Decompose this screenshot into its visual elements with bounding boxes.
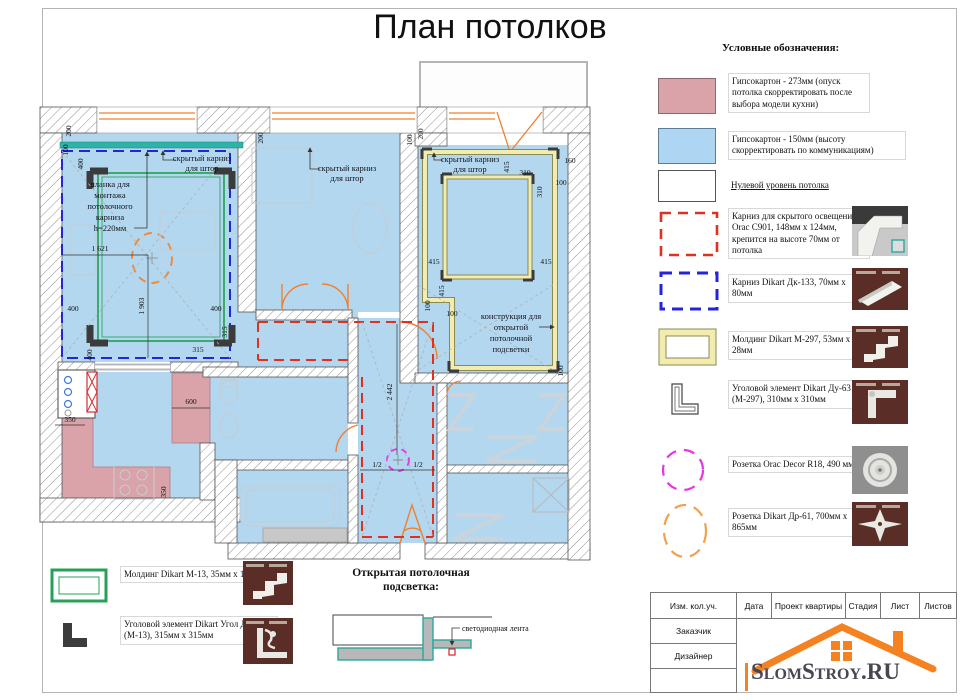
- logo: SlomStroy.RU: [737, 619, 956, 692]
- svg-text:100: 100: [405, 134, 414, 146]
- led-label: светодиодная лента: [462, 624, 529, 633]
- swatch-rosette-dr61: [658, 502, 712, 560]
- legend-heading: Условные обозначения:: [722, 42, 839, 54]
- svg-text:415: 415: [428, 257, 440, 266]
- tb-header-cell: Стадия: [846, 593, 881, 619]
- lighting-detail-drawing: светодиодная лента: [333, 615, 529, 660]
- balcony-outline: [420, 62, 587, 112]
- legend-item-label: Нулевой уровень потолка: [728, 178, 868, 193]
- kitchen-doorway: [95, 362, 170, 372]
- svg-text:350: 350: [159, 486, 168, 498]
- svg-text:1 903: 1 903: [137, 297, 146, 314]
- svg-text:400: 400: [67, 304, 79, 313]
- svg-text:400: 400: [76, 158, 85, 170]
- svg-text:h=220мм: h=220мм: [94, 223, 127, 233]
- appliance-box: [58, 370, 97, 418]
- svg-text:1/2: 1/2: [372, 460, 382, 469]
- svg-text:400: 400: [210, 304, 222, 313]
- logo-text: SlomStroy.RU: [751, 659, 900, 685]
- svg-text:100: 100: [61, 144, 70, 156]
- lighting-detail-heading-line2: подсветка:: [383, 581, 439, 593]
- legend-item-label: Уголовой элемент Dikart Ду-63 (М-297), 3…: [728, 380, 870, 409]
- svg-text:350: 350: [64, 415, 76, 424]
- swatch-cornice-dikart: [658, 270, 720, 312]
- svg-text:415: 415: [502, 161, 511, 173]
- svg-text:карниза: карниза: [96, 212, 124, 222]
- swatch-gypsum-150: [658, 128, 716, 164]
- svg-text:монтажа: монтажа: [94, 190, 126, 200]
- logo-accent-bar: [745, 663, 748, 691]
- svg-text:310: 310: [535, 186, 544, 198]
- lighting-detail-heading: Открытая потолочная подсветка:: [330, 566, 492, 595]
- swatch-rosette-r18: [658, 445, 708, 495]
- svg-text:160: 160: [564, 156, 576, 165]
- svg-text:скрытый карниз: скрытый карниз: [441, 154, 500, 164]
- photo-corner-du51: [243, 618, 293, 664]
- svg-text:100: 100: [556, 365, 565, 377]
- svg-text:315: 315: [220, 326, 229, 338]
- svg-text:100: 100: [555, 178, 567, 187]
- tb-header-cell: Проект квартиры: [772, 593, 846, 619]
- curtain-niche-strip: [60, 142, 243, 148]
- photo-corner-du63: [852, 380, 908, 424]
- title-block: Изм. кол.уч. Дата Проект квартиры Стадия…: [650, 592, 957, 693]
- svg-text:планка для: планка для: [90, 179, 130, 189]
- tb-header-cell: Листов: [920, 593, 957, 619]
- svg-text:открытой: открытой: [494, 322, 529, 332]
- swatch-moulding-m13: [50, 568, 108, 604]
- tb-designer-cell: Дизайнер: [651, 644, 737, 669]
- photo-rosette-dr61: [852, 502, 908, 546]
- svg-text:100: 100: [446, 309, 458, 318]
- swatch-corner-du51: [60, 620, 90, 650]
- photo-moulding-m13: [243, 561, 293, 605]
- svg-text:2 442: 2 442: [385, 383, 394, 400]
- swatch-zero-level: [658, 170, 716, 202]
- tb-customer-cell: Заказчик: [651, 619, 737, 644]
- legend-item-label: Карниз для скрытого освещения Orac C901,…: [728, 208, 870, 259]
- svg-text:для штор: для штор: [330, 173, 363, 183]
- svg-text:1/2: 1/2: [413, 460, 423, 469]
- svg-text:1 621: 1 621: [92, 244, 109, 253]
- legend-extra: Молдинг Dikart М-13, 35мм x 15мм Уголово…: [40, 558, 340, 688]
- photo-rosette-r18: [852, 446, 908, 494]
- tb-empty-cell: [651, 669, 737, 693]
- legend-item-label: Карниз Dikart Дк-133, 70мм x 80мм: [728, 274, 870, 303]
- swatch-corner-du63: [666, 382, 700, 418]
- svg-text:скрытый карниз: скрытый карниз: [318, 163, 377, 173]
- svg-text:200: 200: [64, 125, 73, 137]
- svg-text:415: 415: [540, 257, 552, 266]
- legend-item-label: Розетка Orac Decor R18, 490 мм: [728, 456, 870, 473]
- photo-cornice-dikart: [852, 268, 908, 310]
- lighting-detail-heading-line1: Открытая потолочная: [352, 567, 470, 579]
- svg-text:100: 100: [423, 300, 432, 312]
- photo-moulding-m297: [852, 326, 908, 368]
- sheet: План потолков: [0, 0, 963, 700]
- svg-text:415: 415: [437, 285, 446, 297]
- svg-text:200: 200: [256, 132, 265, 144]
- svg-text:потолочного: потолочного: [87, 201, 132, 211]
- svg-text:для штор: для штор: [453, 164, 486, 174]
- svg-text:400: 400: [85, 349, 94, 361]
- svg-text:600: 600: [185, 397, 197, 406]
- legend-item-label: Гипсокартон - 273мм (опуск потолка скорр…: [728, 73, 870, 113]
- legend-item-label: Розетка Dikart Др-61, 700мм x 865мм: [728, 508, 870, 537]
- photo-cornice-orac: [852, 206, 908, 256]
- svg-text:315: 315: [192, 345, 204, 354]
- svg-text:потолочной: потолочной: [490, 333, 533, 343]
- swatch-moulding-m297: [658, 328, 718, 368]
- swatch-cornice-orac: [658, 210, 720, 258]
- svg-text:для штор: для штор: [185, 163, 218, 173]
- tb-header-cell: Изм. кол.уч.: [651, 593, 737, 619]
- swatch-gypsum-273: [658, 78, 716, 114]
- svg-text:подсветки: подсветки: [493, 344, 530, 354]
- legend-item-label: Молдинг Dikart М-297, 53мм x 28мм: [728, 331, 870, 360]
- svg-text:скрытый карниз: скрытый карниз: [173, 153, 232, 163]
- svg-text:конструкция для: конструкция для: [481, 311, 541, 321]
- tb-header-cell: Дата: [737, 593, 772, 619]
- tb-header-cell: Лист: [881, 593, 920, 619]
- legend-item-label: Гипсокартон - 150мм (высоту скорректиров…: [728, 131, 906, 160]
- svg-text:310: 310: [519, 168, 531, 177]
- legend: Условные обозначения: Гипсокартон - 273м…: [650, 40, 956, 560]
- svg-text:200: 200: [416, 128, 425, 140]
